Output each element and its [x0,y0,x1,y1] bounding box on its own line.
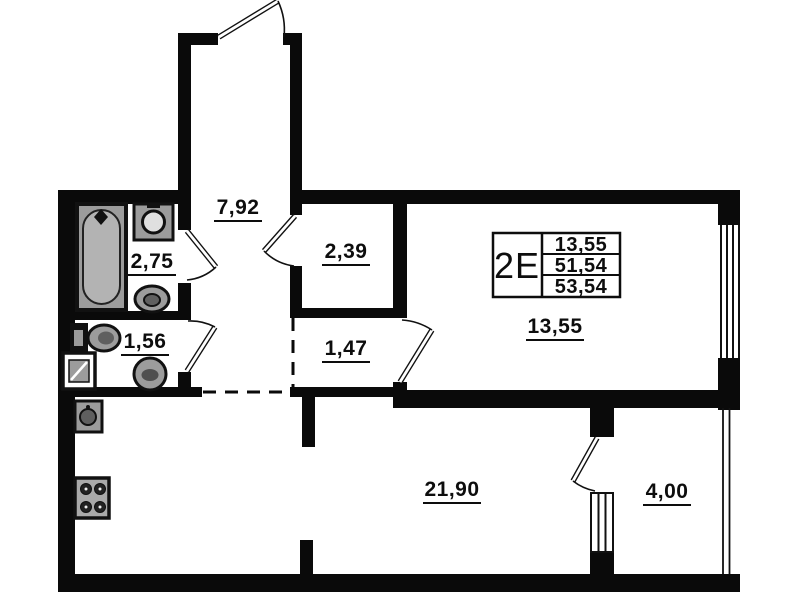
wc-door [187,321,215,371]
area-label-kitchen-living: 21,90 [424,478,479,501]
wc-washbasin-icon [134,358,166,390]
wc-appliance-icon [63,353,95,389]
floor-plan: 2E 13,55 51,54 53,54 7,92 2,75 2,39 1,56… [0,0,799,600]
area-label-bathroom: 2,75 [131,250,174,273]
bathtub-icon [75,202,128,312]
walls [58,33,740,592]
area-label-corridor: 1,47 [325,337,368,360]
closet-door [264,216,295,266]
kitchen-sink-icon [75,401,102,432]
unit-type-label: 2E [494,245,540,286]
area-label-balcony: 4,00 [646,480,689,503]
wc-toilet-icon [70,323,120,353]
bathroom-toilet-icon [135,286,169,312]
entrance-door [219,1,284,37]
area-label-wc: 1,56 [124,330,167,353]
bedroom-window [721,225,739,358]
unit-info-value-2: 51,54 [555,255,608,277]
unit-info-value-3: 53,54 [555,276,608,298]
bedroom-door [400,320,432,382]
balcony-glazing [723,408,730,574]
area-label-closet: 2,39 [325,240,368,263]
bathroom-washbasin-icon [134,203,173,240]
living-room-window [591,493,613,552]
bathroom-door [187,231,216,280]
balcony-door [573,438,597,491]
unit-info-value-1: 13,55 [555,234,608,256]
area-label-bedroom: 13,55 [527,315,582,338]
unit-info-box: 2E 13,55 51,54 53,54 [493,233,620,298]
area-label-hallway: 7,92 [217,196,260,219]
stove-icon [75,478,109,518]
